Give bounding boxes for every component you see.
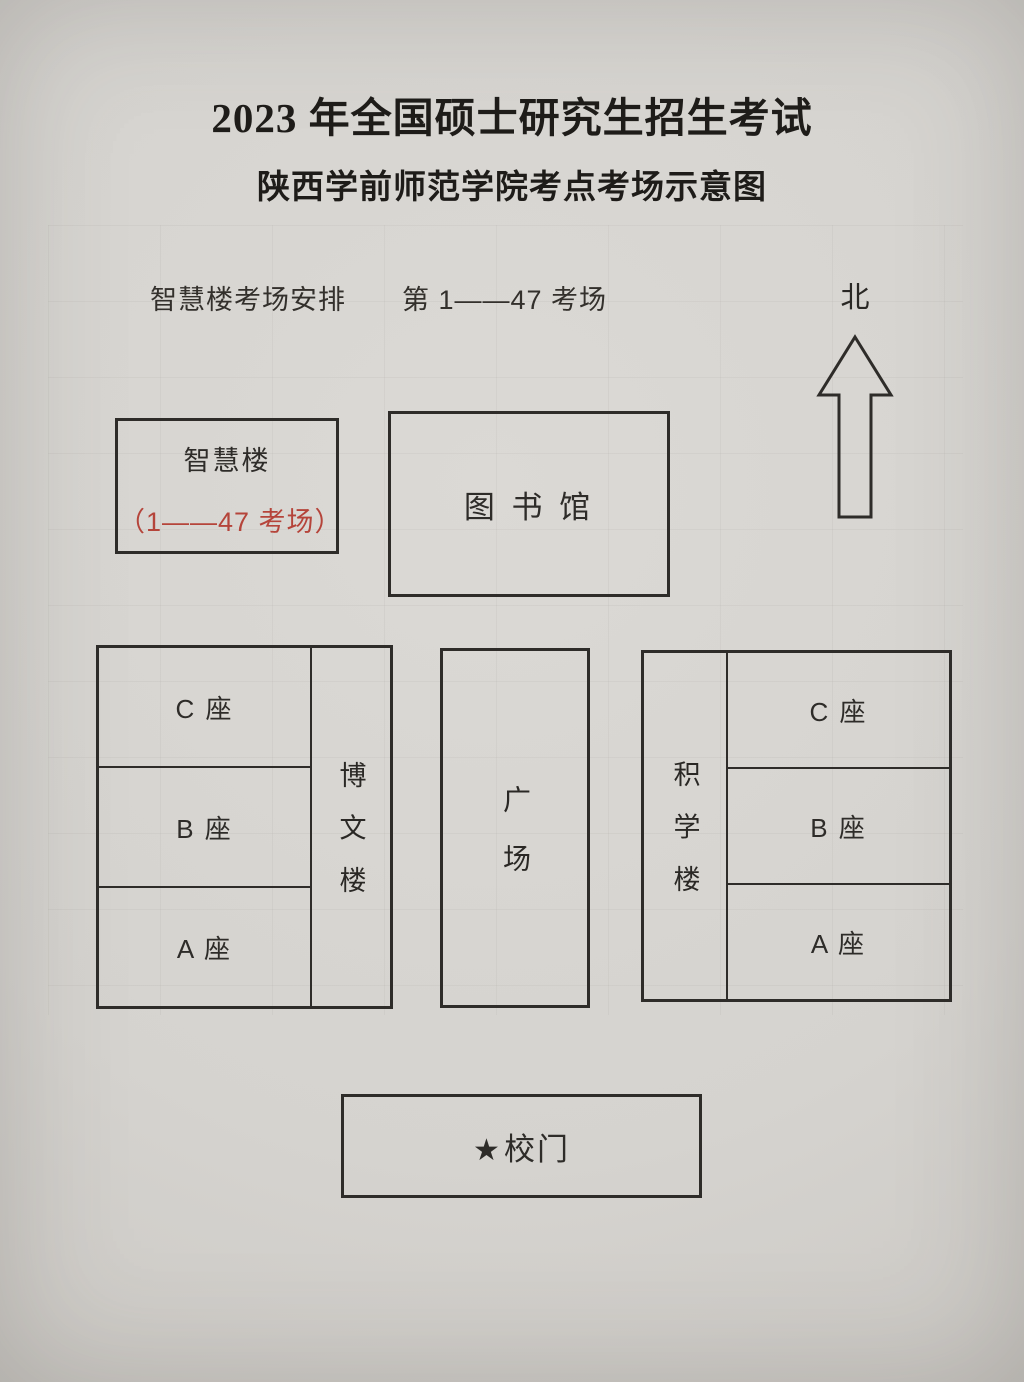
gate-name: 校门 [504,1132,570,1167]
building-bowen-name: 博文楼 [332,761,371,919]
plaza: 广场 [440,648,590,1008]
building-zhihui-rooms: （1——47 考场） [118,500,336,539]
jixue-section-b: B 座 [728,767,949,883]
arrangement-note-rooms: 第 1——47 考场 [402,285,607,315]
building-bowen: C 座 B 座 A 座 博文楼 [96,645,393,1009]
bowen-name-column: 博文楼 [310,648,390,1006]
north-arrow-icon [816,334,894,520]
bowen-section-c: C 座 [99,648,310,766]
building-zhihui: 智慧楼 （1——47 考场） [115,418,339,554]
compass: 北 [813,274,897,520]
star-icon: ★ [473,1134,502,1167]
jixue-name-column: 积学楼 [644,653,728,999]
arrangement-note-building: 智慧楼考场安排 [150,285,346,315]
north-label: 北 [840,274,869,316]
building-jixue-name: 积学楼 [666,760,705,918]
building-zhihui-name: 智慧楼 [184,439,271,478]
bowen-section-b: B 座 [99,766,310,886]
page-subtitle: 陕西学前师范学院考点考场示意图 [0,160,1024,208]
page-title: 2023 年全国硕士研究生招生考试 [0,84,1024,144]
jixue-section-a: A 座 [728,883,949,999]
bowen-sections: C 座 B 座 A 座 [99,648,310,1006]
scanned-exam-map-page: 2023 年全国硕士研究生招生考试 陕西学前师范学院考点考场示意图 智慧楼考场安… [0,0,1024,1382]
building-jixue: 积学楼 C 座 B 座 A 座 [641,650,952,1002]
gate-label: ★校门 [473,1124,570,1169]
plaza-name: 广场 [495,785,535,903]
building-library-name: 图 书 馆 [464,482,594,527]
arrangement-note: 智慧楼考场安排第 1——47 考场 [150,278,607,317]
school-gate: ★校门 [341,1094,702,1198]
building-library: 图 书 馆 [388,411,670,597]
jixue-section-c: C 座 [728,653,949,767]
bowen-section-a: A 座 [99,886,310,1006]
jixue-sections: C 座 B 座 A 座 [728,653,949,999]
